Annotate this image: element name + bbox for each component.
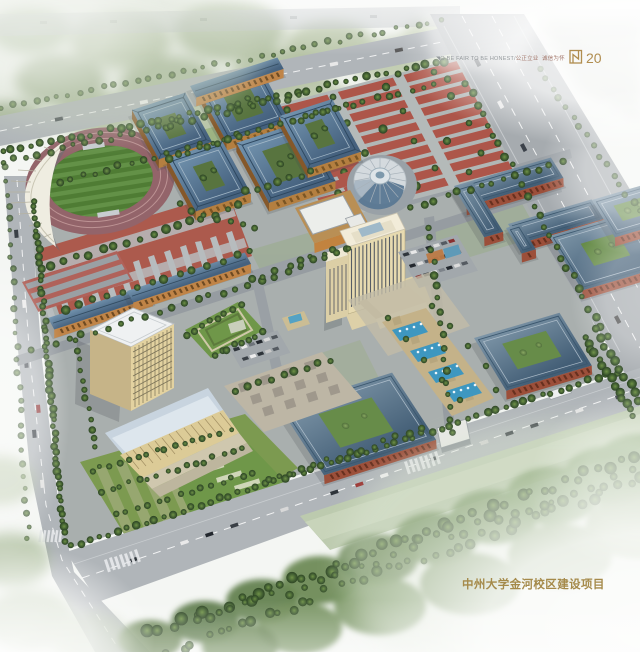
- svg-text:中州大学金河校区建设项目: 中州大学金河校区建设项目: [462, 577, 605, 591]
- svg-text:20: 20: [586, 50, 602, 66]
- svg-text:◥O BE FAIR TO BE HONEST/公正立业: ◥O BE FAIR TO BE HONEST/公正立业 诚信为怀: [436, 54, 565, 62]
